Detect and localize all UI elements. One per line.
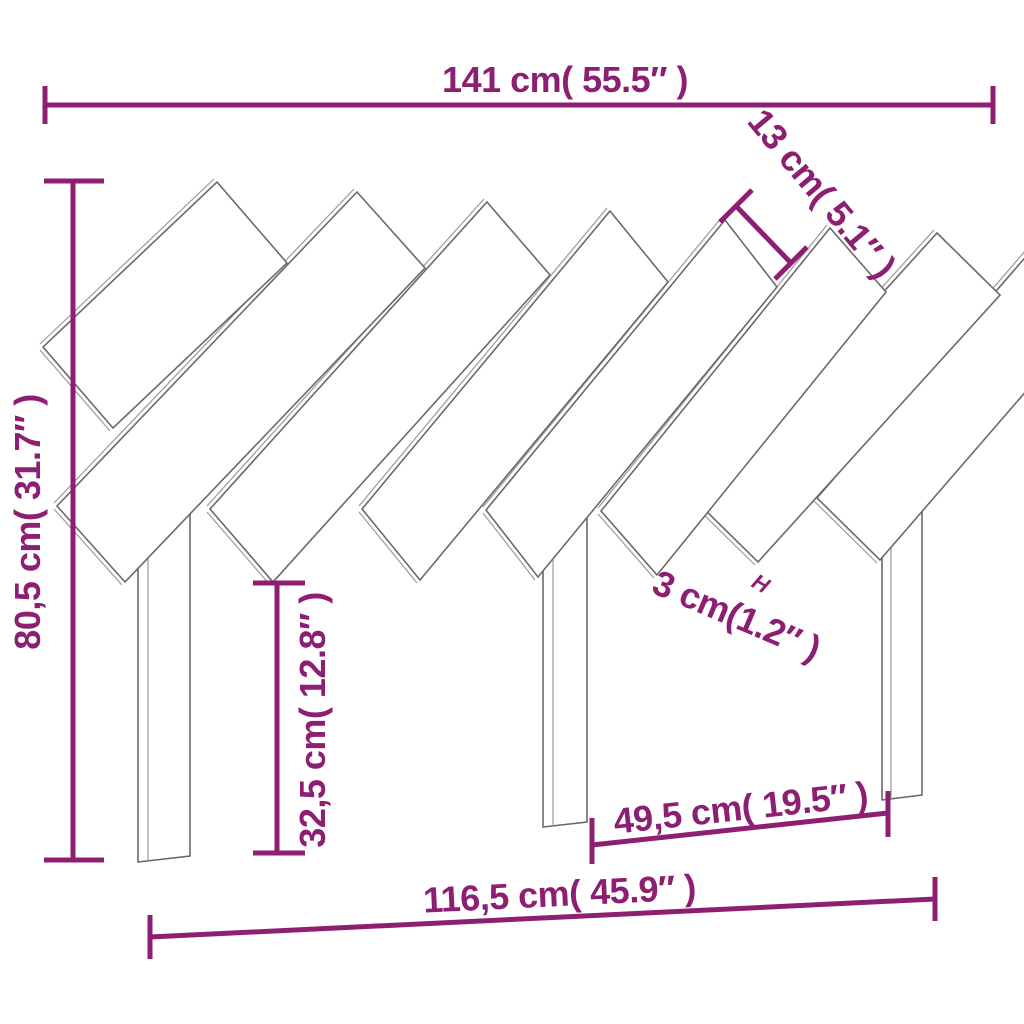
leg-height-label: 32,5 cm( 12.8″ ) — [292, 592, 333, 847]
dimension-slat-gap: H 3 cm(1.2″ ) — [647, 562, 827, 669]
slat-gap-label: 3 cm(1.2″ ) — [647, 562, 827, 669]
leg-spacing-label: 49,5 cm( 19.5″ ) — [611, 773, 869, 841]
dimension-total-width: 141 cm( 55.5″ ) — [45, 59, 993, 124]
total-width-label: 141 cm( 55.5″ ) — [442, 59, 688, 100]
product-dimension-diagram: 141 cm( 55.5″ ) 80,5 cm( 31.7″ ) 32,5 cm… — [0, 0, 1024, 1024]
headboard-diagram-canvas: 141 cm( 55.5″ ) 80,5 cm( 31.7″ ) 32,5 cm… — [0, 0, 1024, 1024]
dimension-leg-height: 32,5 cm( 12.8″ ) — [253, 583, 333, 853]
dimension-leg-spacing: 49,5 cm( 19.5″ ) — [592, 773, 888, 864]
slat-gap-marker: H — [748, 569, 775, 599]
dimension-base-width: 116,5 cm( 45.9″ ) — [150, 866, 935, 959]
total-height-label: 80,5 cm( 31.7″ ) — [7, 394, 48, 649]
